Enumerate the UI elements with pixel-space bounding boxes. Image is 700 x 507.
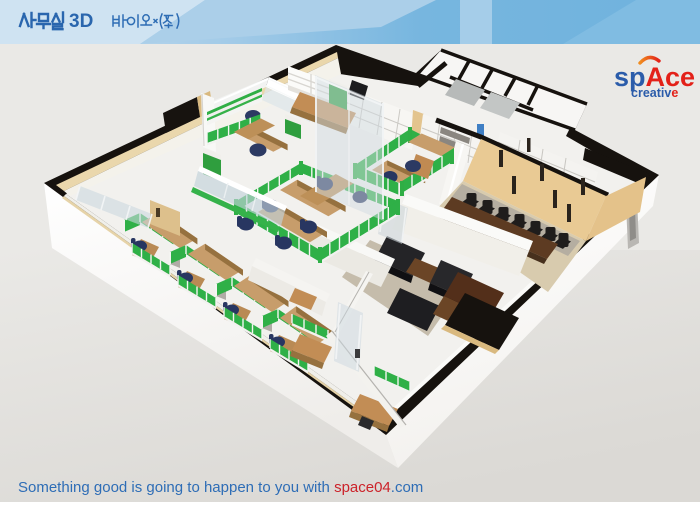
svg-text:creative: creative bbox=[631, 86, 678, 100]
svg-text:3D: 3D bbox=[69, 11, 93, 32]
